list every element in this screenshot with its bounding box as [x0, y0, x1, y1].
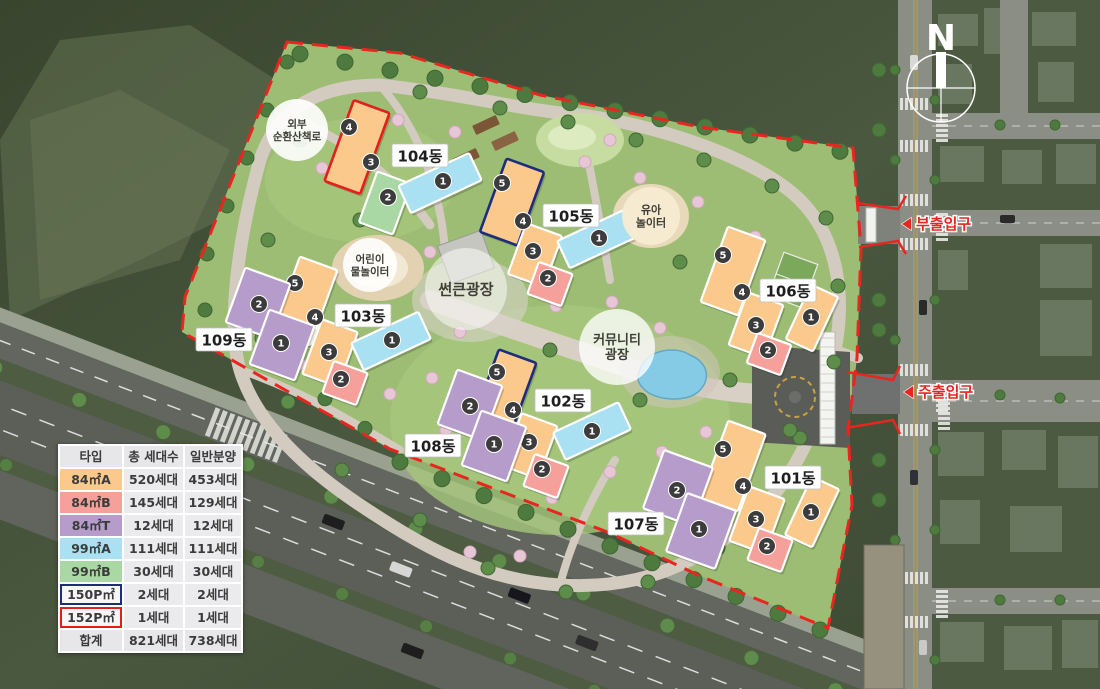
unit-number-text: 4 — [520, 217, 527, 228]
unit-number-text: 4 — [739, 288, 746, 299]
crosswalk-stripe — [915, 424, 918, 436]
crosswalk-stripe — [910, 238, 913, 250]
tree — [812, 622, 828, 638]
dong-label-108: 108동 — [405, 434, 461, 457]
dong-label-text: 106동 — [765, 283, 810, 301]
unit-number-text: 1 — [491, 440, 498, 451]
crosswalk-stripe — [905, 98, 908, 110]
unit-number-text: 1 — [596, 234, 603, 245]
tree — [930, 525, 940, 535]
unit-number-text: 3 — [368, 158, 375, 169]
crosswalk-stripe — [915, 98, 918, 110]
tree — [872, 123, 886, 137]
tree — [783, 423, 797, 437]
tree — [280, 55, 294, 69]
crosswalk-stripe — [910, 424, 913, 436]
tree — [890, 65, 900, 75]
crosswalk-stripe — [936, 590, 948, 593]
area-label-text: 광장 — [605, 347, 629, 363]
tree — [562, 95, 578, 111]
area-infant-play: 유아놀이터 — [622, 187, 680, 245]
city-building-footprint — [1004, 626, 1052, 670]
city-building-footprint — [1058, 436, 1098, 488]
crosswalk-stripe — [938, 417, 950, 420]
crosswalk-stripe — [925, 364, 928, 376]
cherry-tree — [604, 466, 616, 478]
legend-total-5: 2세대 — [124, 584, 183, 605]
crosswalk-stripe — [936, 233, 948, 236]
unit-number-text: 4 — [740, 482, 747, 493]
cherry-tree — [384, 388, 396, 400]
crosswalk-stripe — [905, 364, 908, 376]
legend-type-4: 99㎡B — [60, 561, 122, 582]
crosswalk-stripe — [925, 424, 928, 436]
cherry-tree — [514, 550, 526, 562]
city-building-footprint — [1002, 150, 1042, 184]
dong-label-102: 102동 — [535, 389, 591, 412]
legend-general-0: 453세대 — [185, 469, 241, 490]
unit-number-text: 2 — [256, 300, 263, 311]
tree — [337, 54, 353, 70]
crosswalk-stripe — [920, 140, 923, 152]
tree — [543, 343, 557, 357]
crosswalk-stripe — [910, 194, 913, 206]
city-building-footprint — [1032, 12, 1076, 46]
area-water-play: 어린이물놀이터 — [343, 238, 397, 292]
legend-total-3: 111세대 — [124, 538, 183, 559]
tree — [995, 595, 1005, 605]
dong-label-101: 101동 — [765, 466, 821, 489]
parking-structure — [864, 545, 904, 689]
crosswalk-stripe — [938, 412, 950, 415]
legend-summary-type: 합계 — [60, 630, 122, 651]
tree — [382, 62, 398, 78]
cherry-tree — [464, 546, 476, 558]
area-label-text: 썬큰광장 — [438, 280, 493, 298]
crosswalk-stripe — [925, 238, 928, 250]
cherry-tree — [604, 134, 616, 146]
unit-type-legend-table: 타입총 세대수일반분양84㎡A520세대453세대84㎡B145세대129세대8… — [58, 444, 243, 653]
legend-summary-general: 738세대 — [185, 630, 241, 651]
unit-number-text: 1 — [389, 336, 396, 347]
crosswalk-stripe — [936, 134, 948, 137]
tree — [472, 78, 488, 94]
city-building-footprint — [940, 146, 984, 182]
tree — [633, 393, 647, 407]
tree — [281, 395, 295, 409]
crosswalk-stripe — [936, 124, 948, 127]
tree — [476, 488, 492, 504]
tree — [995, 120, 1005, 130]
crosswalk-stripe — [905, 238, 908, 250]
crosswalk-stripe — [920, 238, 923, 250]
unit-number-text: 2 — [338, 375, 345, 386]
unit-number-text: 5 — [292, 279, 299, 290]
car — [919, 300, 927, 315]
legend-type-6: 152P㎡ — [60, 607, 122, 628]
unit-number-text: 1 — [440, 177, 447, 188]
area-label-text: 어린이 — [356, 252, 385, 265]
unit-number-text: 1 — [696, 525, 703, 536]
tree — [723, 373, 737, 387]
crosswalk-stripe — [920, 98, 923, 110]
legend-general-6: 1세대 — [185, 607, 241, 628]
canopy-roof — [820, 332, 835, 444]
unit-number-text: 5 — [494, 368, 501, 379]
tree — [890, 535, 900, 545]
tree — [673, 255, 687, 269]
city-building-footprint — [1038, 62, 1074, 102]
crosswalk-stripe — [936, 605, 948, 608]
cherry-tree — [426, 372, 438, 384]
crosswalk-stripe — [920, 194, 923, 206]
unit-number-text: 2 — [764, 542, 771, 553]
legend-summary-total: 821세대 — [124, 630, 183, 651]
crosswalk-stripe — [925, 194, 928, 206]
legend-total-2: 12세대 — [124, 515, 183, 536]
unit-number-text: 1 — [808, 313, 815, 324]
legend-general-4: 30세대 — [185, 561, 241, 582]
tree — [872, 323, 886, 337]
car — [919, 640, 927, 655]
dong-label-text: 109동 — [201, 332, 246, 350]
crosswalk-stripe — [925, 572, 928, 584]
cherry-tree — [424, 246, 436, 258]
crosswalk-stripe — [936, 610, 948, 613]
crosswalk-stripe — [900, 98, 903, 110]
crosswalk-stripe — [920, 364, 923, 376]
main-gate-canopy — [820, 332, 835, 444]
crosswalk-stripe — [936, 615, 948, 618]
cherry-tree — [316, 162, 328, 174]
crosswalk-stripe — [915, 140, 918, 152]
city-building-footprint — [940, 500, 980, 544]
city-building-footprint — [1040, 300, 1092, 356]
tree — [1050, 120, 1060, 130]
cherry-tree — [634, 172, 646, 184]
crosswalk-stripe — [936, 129, 948, 132]
crosswalk-stripe — [915, 194, 918, 206]
tree — [872, 493, 886, 507]
city-building-footprint — [1010, 506, 1062, 552]
car — [910, 470, 918, 485]
crosswalk-stripe — [910, 616, 913, 628]
road-vertical-upper — [1000, 0, 1028, 118]
unit-number-text: 2 — [539, 465, 546, 476]
roundabout-island — [789, 391, 801, 403]
cherry-tree — [392, 114, 404, 126]
tree — [644, 555, 660, 571]
crosswalk-stripe — [900, 140, 903, 152]
cherry-tree — [700, 426, 712, 438]
tree — [890, 155, 900, 165]
area-label-text: 커뮤니티 — [593, 332, 641, 348]
crosswalk-stripe — [910, 572, 913, 584]
cherry-tree — [606, 296, 618, 308]
area-outer-trail: 외부순환산책로 — [266, 99, 328, 161]
dong-label-105: 105동 — [543, 204, 599, 227]
tree — [819, 211, 833, 225]
unit-number-text: 3 — [753, 321, 760, 332]
tree — [930, 655, 940, 665]
crosswalk-stripe — [938, 427, 950, 430]
unit-number-text: 5 — [499, 179, 506, 190]
dong-label-text: 107동 — [613, 516, 658, 534]
crosswalk-stripe — [925, 616, 928, 628]
crosswalk-stripe — [915, 572, 918, 584]
crosswalk-stripe — [915, 238, 918, 250]
site-plan-screenshot: 54321543215432143215432154321212121101동1… — [0, 0, 1100, 689]
area-sunken-plaza: 썬큰광장 — [425, 248, 507, 330]
dong-label-text: 105동 — [548, 208, 593, 226]
tree — [559, 585, 573, 599]
tree — [930, 295, 940, 305]
tree — [1055, 393, 1065, 403]
dong-label-109: 109동 — [196, 328, 252, 351]
crosswalk-stripe — [910, 140, 913, 152]
unit-number-text: 2 — [674, 486, 681, 497]
crosswalk-stripe — [900, 424, 903, 436]
legend-total-6: 1세대 — [124, 607, 183, 628]
unit-number-text: 3 — [326, 348, 333, 359]
legend-total-1: 145세대 — [124, 492, 183, 513]
crosswalk-stripe — [900, 364, 903, 376]
unit-number-text: 4 — [510, 406, 517, 417]
crosswalk-stripe — [938, 402, 950, 405]
area-label-text: 순환산책로 — [273, 130, 322, 143]
unit-number-text: 3 — [753, 515, 760, 526]
crosswalk-stripe — [915, 616, 918, 628]
unit-number-text: 4 — [346, 123, 353, 134]
tree — [198, 303, 212, 317]
dong-label-103: 103동 — [335, 304, 391, 327]
dong-label-text: 103동 — [340, 308, 385, 326]
legend-type-1: 84㎡B — [60, 492, 122, 513]
tree — [335, 463, 349, 477]
unit-number-text: 3 — [530, 247, 537, 258]
legend-type-2: 84㎡T — [60, 515, 122, 536]
area-label-text: 놀이터 — [636, 215, 666, 229]
crosswalk-stripe — [920, 424, 923, 436]
car — [1000, 215, 1015, 223]
unit-number-text: 2 — [467, 402, 474, 413]
area-community-plaza: 커뮤니티광장 — [579, 309, 655, 385]
tree — [561, 115, 575, 129]
dong-label-107: 107동 — [608, 512, 664, 535]
legend-type-5: 150P㎡ — [60, 584, 122, 605]
unit-number-text: 3 — [526, 438, 533, 449]
tree — [427, 70, 443, 86]
tree — [641, 575, 655, 589]
crosswalk-stripe — [905, 616, 908, 628]
cherry-tree — [579, 156, 591, 168]
tree — [629, 133, 643, 147]
entrance-label-text: 주출입구 — [918, 383, 973, 401]
legend-general-3: 111세대 — [185, 538, 241, 559]
dong-label-text: 104동 — [397, 148, 442, 166]
crosswalk-stripe — [936, 114, 948, 117]
crosswalk-stripe — [938, 422, 950, 425]
legend-general-5: 2세대 — [185, 584, 241, 605]
compass-north-bar — [936, 52, 946, 88]
tree — [930, 445, 940, 455]
city-building-footprint — [1056, 144, 1096, 184]
tree — [493, 101, 507, 115]
dong-label-text: 108동 — [410, 438, 455, 456]
legend-total-4: 30세대 — [124, 561, 183, 582]
tree — [560, 521, 576, 537]
tree — [872, 63, 886, 77]
tree — [787, 135, 803, 151]
area-label-text: 유아 — [641, 202, 662, 216]
city-grid-east — [898, 0, 1100, 689]
tree — [697, 153, 711, 167]
unit-number-text: 2 — [385, 193, 392, 204]
tree — [518, 504, 534, 520]
crosswalk-stripe — [938, 407, 950, 410]
tree — [831, 279, 845, 293]
dong-label-text: 102동 — [540, 393, 585, 411]
cherry-tree — [654, 322, 666, 334]
legend-general-2: 12세대 — [185, 515, 241, 536]
crosswalk-stripe — [936, 139, 948, 142]
tree — [765, 179, 779, 193]
legend-general-1: 129세대 — [185, 492, 241, 513]
crosswalk-stripe — [905, 140, 908, 152]
crosswalk-stripe — [905, 424, 908, 436]
crosswalk-stripe — [910, 364, 913, 376]
unit-number-text: 2 — [545, 274, 552, 285]
crosswalk-stripe — [925, 140, 928, 152]
crosswalk-stripe — [915, 364, 918, 376]
tree — [413, 85, 427, 99]
city-building-footprint — [938, 250, 968, 290]
dong-label-106: 106동 — [760, 279, 816, 302]
legend-header-1: 총 세대수 — [124, 446, 183, 467]
unit-number-text: 4 — [312, 313, 319, 324]
legend-type-0: 84㎡A — [60, 469, 122, 490]
tree — [930, 175, 940, 185]
crosswalk-stripe — [925, 98, 928, 110]
tree — [292, 46, 308, 62]
tree — [872, 293, 886, 307]
cherry-tree — [692, 196, 704, 208]
dong-label-text: 101동 — [770, 470, 815, 488]
sub-entrance-road — [858, 206, 900, 244]
crosswalk-stripe — [936, 238, 948, 241]
crosswalk-stripe — [905, 572, 908, 584]
area-label-text: 물놀이터 — [351, 265, 390, 278]
sub-gate-canopy — [866, 208, 876, 242]
unit-number-text: 1 — [808, 508, 815, 519]
unit-number-text: 1 — [589, 427, 596, 438]
dong-label-104: 104동 — [392, 144, 448, 167]
crosswalk-stripe — [936, 600, 948, 603]
city-building-footprint — [940, 622, 984, 662]
city-building-footprint — [1062, 620, 1098, 668]
tree — [930, 95, 940, 105]
legend-total-0: 520세대 — [124, 469, 183, 490]
tree — [890, 335, 900, 345]
cherry-tree — [449, 126, 461, 138]
legend-type-3: 99㎡A — [60, 538, 122, 559]
tree — [827, 355, 841, 369]
legend-header-0: 타입 — [60, 446, 122, 467]
unit-number-text: 2 — [765, 346, 772, 357]
crosswalk-stripe — [920, 572, 923, 584]
city-building-footprint — [1002, 430, 1046, 470]
city-building-footprint — [938, 432, 984, 476]
crosswalk-stripe — [936, 595, 948, 598]
area-label-text: 외부 — [287, 118, 307, 130]
city-building-footprint — [1040, 244, 1092, 288]
tree — [602, 538, 618, 554]
tree — [1055, 595, 1065, 605]
unit-number-text: 5 — [720, 445, 727, 456]
tree — [434, 471, 450, 487]
unit-number-text: 5 — [720, 251, 727, 262]
tree — [413, 513, 427, 527]
crosswalk-stripe — [920, 616, 923, 628]
entrance-label-text: 부출입구 — [916, 215, 971, 233]
tree — [261, 233, 275, 247]
unit-number-text: 1 — [278, 339, 285, 350]
tree — [995, 390, 1005, 400]
tree — [481, 561, 495, 575]
legend-header-2: 일반분양 — [185, 446, 241, 467]
tree — [872, 453, 886, 467]
